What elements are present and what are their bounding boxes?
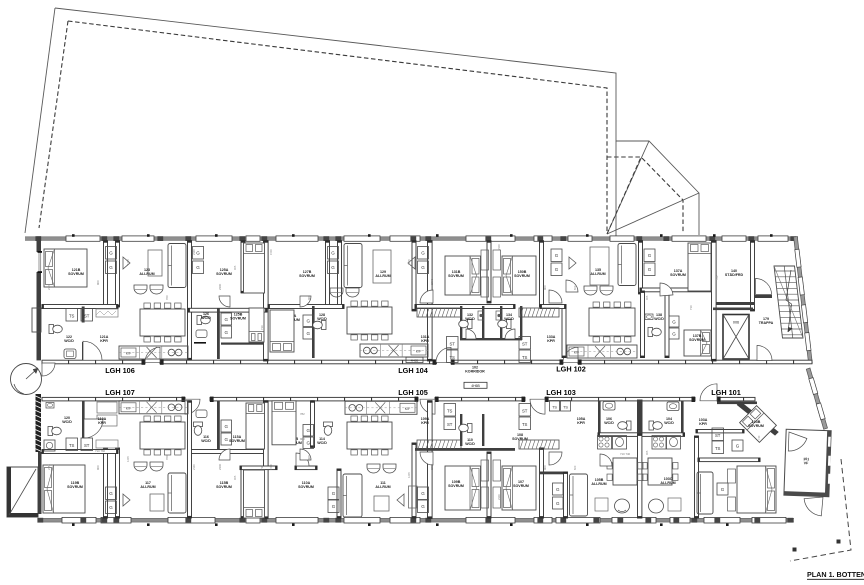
svg-text:KPR: KPR xyxy=(98,421,106,425)
svg-text:G: G xyxy=(421,504,425,509)
svg-text:ST: ST xyxy=(715,433,721,438)
svg-text:ALLRUM: ALLRUM xyxy=(590,272,605,276)
svg-text:G: G xyxy=(332,504,336,509)
svg-text:G: G xyxy=(306,441,310,446)
svg-text:SOVRUM: SOVRUM xyxy=(748,424,764,428)
svg-text:G: G xyxy=(555,253,559,258)
svg-text:TS: TS xyxy=(69,443,75,448)
svg-text:2300: 2300 xyxy=(497,494,501,500)
svg-text:WC/D: WC/D xyxy=(317,317,327,321)
svg-text:1205: 1205 xyxy=(126,259,130,265)
svg-text:905: 905 xyxy=(645,295,649,300)
svg-text:ALLRUM: ALLRUM xyxy=(375,485,390,489)
svg-text:TS: TS xyxy=(522,422,528,427)
svg-text:KPR: KPR xyxy=(547,339,555,343)
svg-text:G: G xyxy=(224,424,228,429)
svg-text:G: G xyxy=(556,501,560,506)
svg-text:TS: TS xyxy=(447,408,453,413)
svg-text:ALLRUM: ALLRUM xyxy=(375,274,390,278)
svg-text:G: G xyxy=(109,251,113,256)
svg-text:ALLRUM: ALLRUM xyxy=(660,481,675,485)
svg-text:ALLRUM: ALLRUM xyxy=(139,272,154,276)
svg-text:710: 710 xyxy=(689,305,693,310)
svg-text:760: 760 xyxy=(165,295,169,300)
svg-text:2300: 2300 xyxy=(497,244,501,250)
svg-text:SOVRUM: SOVRUM xyxy=(448,484,464,488)
svg-text:G: G xyxy=(196,265,200,270)
svg-text:WC/D: WC/D xyxy=(664,421,674,425)
svg-text:KPR: KPR xyxy=(421,421,429,425)
svg-text:ST: ST xyxy=(522,408,528,413)
svg-text:ALLRUM: ALLRUM xyxy=(591,482,606,486)
svg-text:KPR: KPR xyxy=(100,339,108,343)
svg-text:TS: TS xyxy=(552,405,557,409)
svg-text:905: 905 xyxy=(233,265,237,270)
svg-text:KPR: KPR xyxy=(421,339,429,343)
svg-text:LGH 107: LGH 107 xyxy=(105,388,135,397)
svg-text:TS: TS xyxy=(522,355,528,360)
svg-text:G: G xyxy=(555,267,559,272)
svg-text:G: G xyxy=(721,487,725,492)
svg-text:LGH 104: LGH 104 xyxy=(398,366,429,375)
svg-text:G: G xyxy=(331,251,335,256)
svg-text:1205: 1205 xyxy=(407,472,411,478)
svg-text:G: G xyxy=(648,253,652,258)
svg-text:G: G xyxy=(672,319,676,324)
svg-text:SOVRUM: SOVRUM xyxy=(512,437,528,441)
svg-text:LGH 102: LGH 102 xyxy=(556,365,586,374)
svg-text:WC/D: WC/D xyxy=(604,421,614,425)
svg-text:2300: 2300 xyxy=(218,463,222,470)
svg-text:2355: 2355 xyxy=(47,284,51,290)
svg-text:WC/D: WC/D xyxy=(654,317,664,321)
svg-text:782: 782 xyxy=(300,412,305,416)
svg-text:SOVRUM: SOVRUM xyxy=(67,485,83,489)
svg-text:G: G xyxy=(109,265,113,270)
svg-text:905: 905 xyxy=(233,475,237,480)
svg-text:PLAN 1. BOTTENPLAN: PLAN 1. BOTTENPLAN xyxy=(807,570,864,579)
svg-text:600: 600 xyxy=(573,465,577,470)
svg-text:1205: 1205 xyxy=(126,456,130,462)
svg-text:905: 905 xyxy=(645,450,649,455)
svg-text:760: 760 xyxy=(715,275,719,280)
svg-text:G: G xyxy=(421,265,425,270)
svg-text:710 740: 710 740 xyxy=(620,452,631,456)
svg-text:TS: TS xyxy=(563,405,568,409)
svg-text:KPR: KPR xyxy=(699,422,707,426)
svg-text:G: G xyxy=(421,491,425,496)
svg-text:2300: 2300 xyxy=(430,278,434,285)
svg-text:LGH 105: LGH 105 xyxy=(398,388,428,397)
svg-text:600: 600 xyxy=(307,455,311,460)
svg-text:TS: TS xyxy=(449,355,455,360)
svg-text:G: G xyxy=(109,505,113,510)
svg-text:G: G xyxy=(648,267,652,272)
svg-text:2300: 2300 xyxy=(218,283,222,290)
svg-text:WC/D: WC/D xyxy=(201,439,211,443)
svg-text:LGH 103: LGH 103 xyxy=(546,388,576,397)
svg-text:ST: ST xyxy=(522,341,528,346)
svg-text:2390: 2390 xyxy=(192,249,196,255)
svg-text:2300: 2300 xyxy=(430,463,434,470)
svg-text:G: G xyxy=(306,319,310,324)
svg-text:710 760: 710 760 xyxy=(95,449,106,453)
svg-text:4H6B: 4H6B xyxy=(411,359,419,363)
svg-text:SOVRUM: SOVRUM xyxy=(68,272,84,276)
svg-text:G: G xyxy=(109,491,113,496)
svg-text:G: G xyxy=(332,491,336,496)
svg-text:LGH 106: LGH 106 xyxy=(105,366,135,375)
svg-text:710: 710 xyxy=(260,325,264,330)
svg-text:G: G xyxy=(556,487,560,492)
svg-text:G: G xyxy=(306,428,310,433)
svg-text:900: 900 xyxy=(300,437,305,441)
svg-text:SOVRUM: SOVRUM xyxy=(514,274,530,278)
svg-text:G: G xyxy=(224,330,228,335)
svg-text:SOVRUM: SOVRUM xyxy=(448,274,464,278)
svg-text:G: G xyxy=(421,251,425,256)
svg-text:1500: 1500 xyxy=(269,249,273,255)
svg-text:1205: 1205 xyxy=(407,259,411,265)
svg-text:SOVRUM: SOVRUM xyxy=(216,485,232,489)
svg-text:760: 760 xyxy=(165,455,169,460)
svg-text:G: G xyxy=(224,317,228,322)
svg-text:900: 900 xyxy=(543,285,547,290)
svg-text:G: G xyxy=(224,437,228,442)
svg-text:WC/D: WC/D xyxy=(504,317,514,321)
svg-text:WC/D: WC/D xyxy=(465,442,475,446)
svg-text:WC/D: WC/D xyxy=(317,441,327,445)
svg-text:900: 900 xyxy=(543,465,547,470)
svg-text:G: G xyxy=(306,331,310,336)
svg-text:KORRIDOR: KORRIDOR xyxy=(465,370,485,374)
svg-text:WC/D: WC/D xyxy=(201,316,211,320)
svg-text:STÄD/FRD: STÄD/FRD xyxy=(725,273,744,277)
svg-text:SOVRUM: SOVRUM xyxy=(298,485,314,489)
svg-text:SOVRUM: SOVRUM xyxy=(299,274,315,278)
svg-text:900: 900 xyxy=(96,465,100,470)
svg-text:900: 900 xyxy=(96,280,100,285)
svg-text:LGH 101: LGH 101 xyxy=(711,388,741,397)
svg-text:SOVRUM: SOVRUM xyxy=(230,317,246,321)
svg-text:G: G xyxy=(736,443,740,448)
svg-text:SOVRUM: SOVRUM xyxy=(670,273,686,277)
svg-text:SOVRUM: SOVRUM xyxy=(513,484,529,488)
svg-text:1500: 1500 xyxy=(269,464,273,470)
svg-text:710: 710 xyxy=(260,465,264,470)
svg-text:WC/D: WC/D xyxy=(465,317,475,321)
svg-text:4H6B: 4H6B xyxy=(471,384,480,388)
svg-text:ST: ST xyxy=(84,443,90,448)
svg-text:G: G xyxy=(672,331,676,336)
svg-text:ST: ST xyxy=(84,313,90,318)
svg-text:TS: TS xyxy=(715,446,721,451)
svg-text:ST: ST xyxy=(447,422,453,427)
svg-text:740: 740 xyxy=(757,435,761,440)
svg-text:600: 600 xyxy=(307,295,311,300)
svg-text:WC/D: WC/D xyxy=(62,420,72,424)
svg-text:KPR: KPR xyxy=(577,421,585,425)
svg-text:SOVRUM: SOVRUM xyxy=(229,439,245,443)
svg-text:2390: 2390 xyxy=(192,464,196,470)
svg-text:G: G xyxy=(331,265,335,270)
svg-text:G: G xyxy=(196,251,200,256)
svg-text:ALLRUM: ALLRUM xyxy=(140,485,155,489)
svg-text:TRAPPA: TRAPPA xyxy=(759,321,774,325)
svg-text:SOVRUM: SOVRUM xyxy=(216,272,232,276)
svg-text:TS: TS xyxy=(69,313,75,318)
svg-text:600: 600 xyxy=(573,285,577,290)
svg-text:006: 006 xyxy=(733,321,739,325)
svg-text:WC/D: WC/D xyxy=(64,339,74,343)
svg-text:SOVRUM: SOVRUM xyxy=(689,338,705,342)
svg-text:ST: ST xyxy=(449,341,455,346)
svg-text:2355: 2355 xyxy=(47,464,51,470)
